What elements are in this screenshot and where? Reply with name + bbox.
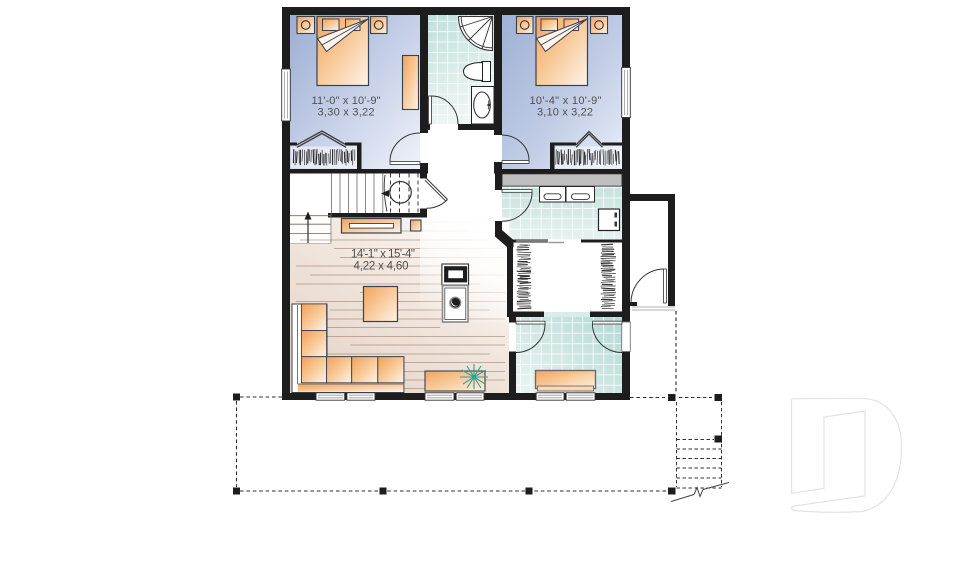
- svg-text:3,10 x 3,22: 3,10 x 3,22: [537, 107, 593, 119]
- svg-text:3,30 x 3,22: 3,30 x 3,22: [318, 107, 375, 119]
- svg-text:4,22 x 4,60: 4,22 x 4,60: [354, 261, 409, 273]
- svg-text:10'-4" x 10'-9": 10'-4" x 10'-9": [530, 95, 602, 107]
- svg-text:14'-1" x 15'-4": 14'-1" x 15'-4": [351, 249, 415, 261]
- svg-text:11'-0" x 10'-9": 11'-0" x 10'-9": [312, 95, 381, 107]
